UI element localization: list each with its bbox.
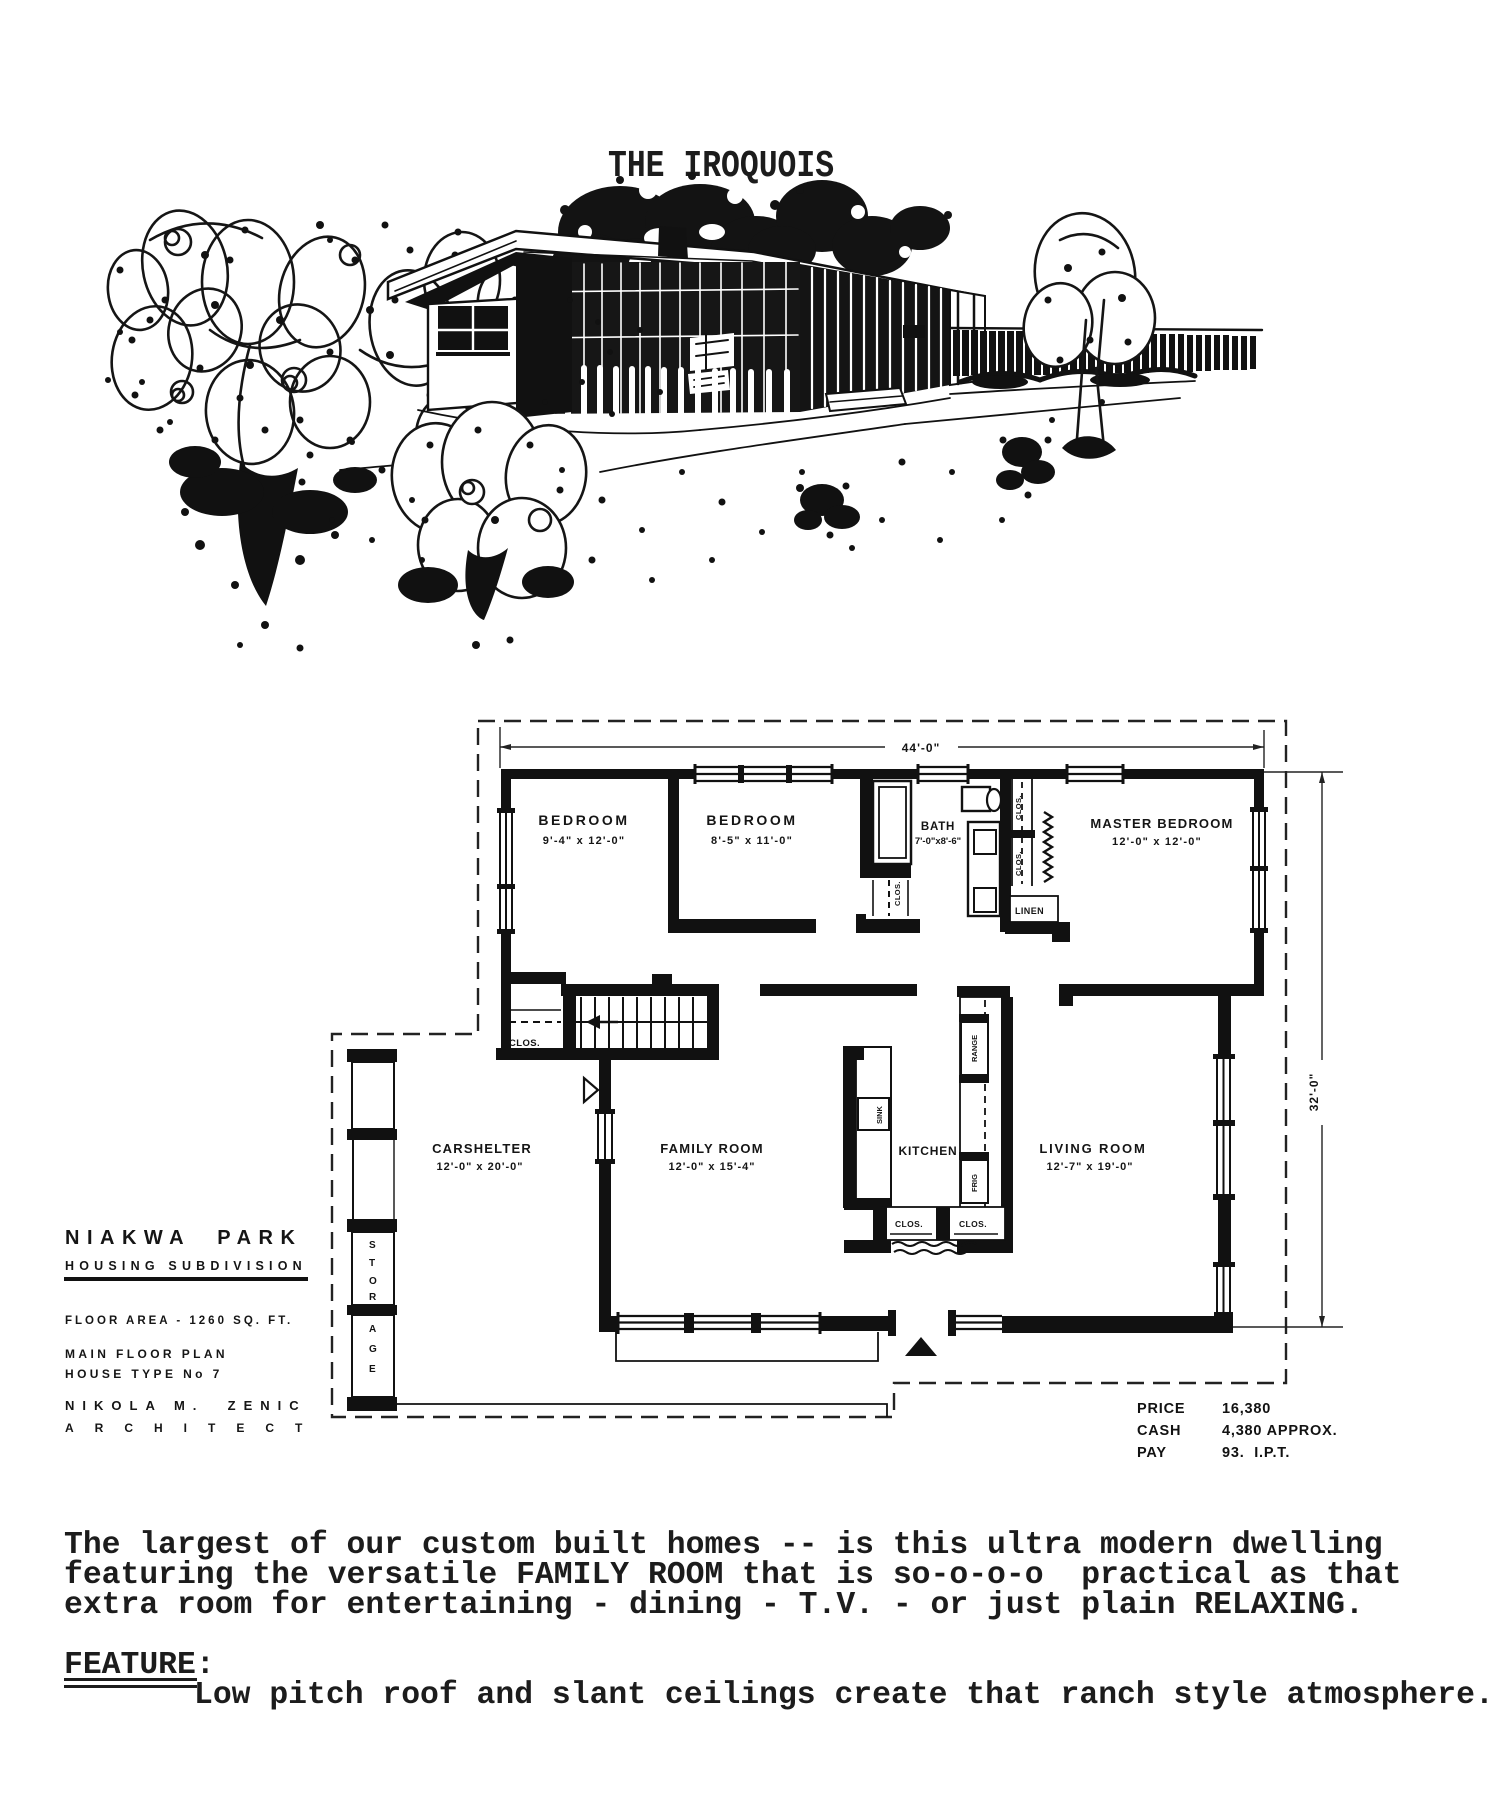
svg-text:12'-0" x 15'-4": 12'-0" x 15'-4" [669,1161,756,1173]
svg-text:Low pitch roof and slant ceili: Low pitch roof and slant ceilings create… [194,1678,1494,1713]
svg-text:CASH: CASH [1137,1423,1181,1439]
svg-text:R: R [369,1292,377,1303]
svg-text:PAY: PAY [1137,1445,1167,1461]
svg-text:NIKOLA M. ZENIC: NIKOLA M. ZENIC [65,1398,307,1413]
svg-text:CLOS.: CLOS. [959,1219,987,1229]
svg-text:G: G [369,1344,377,1355]
svg-text:BEDROOM: BEDROOM [538,812,629,828]
svg-text:ARCHITECT: ARCHITECT [65,1421,323,1435]
svg-text:BATH: BATH [921,821,955,833]
svg-text:KITCHEN: KITCHEN [899,1144,958,1158]
svg-text:O: O [369,1276,377,1287]
svg-text:RANGE: RANGE [970,1035,979,1062]
svg-text:MASTER BEDROOM: MASTER BEDROOM [1090,816,1233,831]
svg-text:12'-7" x 19'-0": 12'-7" x 19'-0" [1047,1161,1134,1173]
svg-text:HOUSE TYPE No 7: HOUSE TYPE No 7 [65,1367,223,1381]
svg-text:32'-0": 32'-0" [1307,1073,1321,1112]
svg-text:CARSHELTER: CARSHELTER [432,1141,532,1156]
svg-text:PRICE: PRICE [1137,1401,1185,1417]
svg-text:LIVING ROOM: LIVING ROOM [1039,1141,1146,1156]
svg-text:4,380 APPROX.: 4,380 APPROX. [1222,1423,1337,1439]
svg-text:HOUSING SUBDIVISION: HOUSING SUBDIVISION [65,1259,307,1273]
svg-text:9'-4" x 12'-0": 9'-4" x 12'-0" [543,835,626,847]
svg-text:FAMILY ROOM: FAMILY ROOM [660,1141,764,1156]
svg-text:FEATURE:: FEATURE: [64,1648,215,1683]
svg-text:16,380: 16,380 [1222,1401,1271,1417]
svg-text:CLOS.: CLOS. [1014,795,1023,820]
svg-text:CLOS.: CLOS. [509,1038,540,1049]
svg-text:12'-0" x 12'-0": 12'-0" x 12'-0" [1112,836,1202,848]
svg-text:S: S [369,1240,376,1251]
svg-text:CLOS.: CLOS. [1014,851,1023,876]
svg-text:LINEN: LINEN [1015,906,1044,916]
svg-text:FLOOR AREA - 1260 SQ. FT.: FLOOR AREA - 1260 SQ. FT. [65,1315,293,1327]
svg-text:SINK: SINK [875,1105,884,1124]
svg-text:THE IROQUOIS: THE IROQUOIS [608,144,834,188]
svg-text:CLOS.: CLOS. [895,1219,923,1229]
svg-text:7'-0"x8'-6": 7'-0"x8'-6" [915,836,961,847]
svg-text:T: T [369,1258,375,1269]
svg-text:MAIN FLOOR PLAN: MAIN FLOOR PLAN [65,1347,228,1361]
svg-text:8'-5" x 11'-0": 8'-5" x 11'-0" [711,835,793,847]
svg-text:extra room for entertaining -: extra room for entertaining - dining - T… [64,1588,1364,1623]
svg-text:44'-0": 44'-0" [902,741,941,755]
svg-text:CLOS.: CLOS. [893,881,902,906]
svg-text:A: A [369,1324,376,1335]
svg-text:93. I.P.T.: 93. I.P.T. [1222,1445,1290,1461]
svg-text:FRIG: FRIG [970,1174,979,1192]
svg-text:BEDROOM: BEDROOM [706,812,797,828]
svg-text:12'-0" x 20'-0": 12'-0" x 20'-0" [437,1161,524,1173]
svg-text:E: E [369,1364,376,1375]
svg-text:NIAKWA PARK: NIAKWA PARK [65,1227,302,1249]
